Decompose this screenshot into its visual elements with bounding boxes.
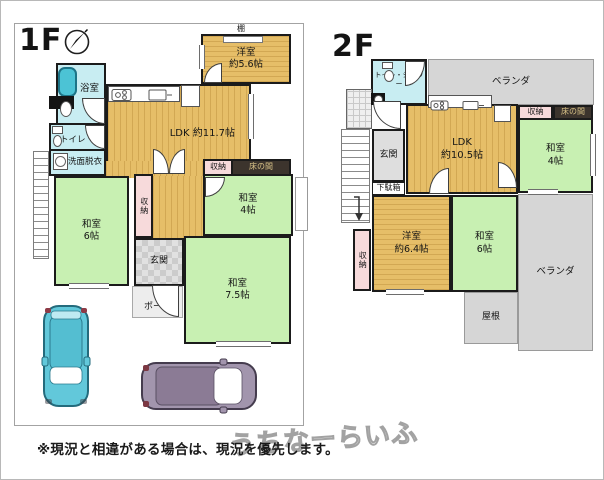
floor-1f-label: 1F bbox=[19, 23, 62, 58]
room-1f-japanese-room-75: 和室 7.5帖 bbox=[184, 236, 291, 344]
window bbox=[386, 289, 424, 295]
window bbox=[216, 341, 271, 347]
floor-2f-label: 2F bbox=[332, 29, 375, 64]
disclaimer-text: ※現況と相違がある場合は、現況を優先します。 bbox=[37, 438, 339, 458]
veranda-north-label: ベランダ bbox=[492, 76, 530, 88]
room-2f-closet-west: 収納 bbox=[353, 229, 371, 291]
toilet-bowl-icon bbox=[53, 135, 62, 147]
room-2f-western-room-label: 洋室 約6.4帖 bbox=[394, 231, 428, 256]
room-2f-western-room: 洋室 約6.4帖 bbox=[372, 195, 451, 292]
stairs-down-arrow-icon bbox=[350, 195, 368, 223]
stairwell-void-2f bbox=[346, 89, 372, 129]
stove-sink-icon bbox=[429, 100, 491, 111]
room-1f-japanese-room-4-label: 和室 4帖 bbox=[238, 193, 257, 218]
kitchen-counter-1f bbox=[108, 86, 180, 102]
room-1f-ldk-corridor bbox=[153, 176, 203, 238]
toilet-tank-icon bbox=[382, 62, 393, 69]
car-top-view-purple-icon bbox=[140, 358, 260, 414]
room-1f-entrance-label: 玄関 bbox=[150, 256, 168, 268]
room-2f-ldk-label: LDK 約10.5帖 bbox=[441, 136, 483, 162]
room-1f-closet-hall: 収納 bbox=[134, 174, 153, 238]
window bbox=[590, 134, 596, 176]
room-2f-closet-north-label: 収納 bbox=[528, 107, 544, 117]
toilet-tank-icon bbox=[52, 126, 63, 134]
staircase-1f bbox=[33, 151, 49, 259]
engawa-strip-1f bbox=[295, 177, 308, 231]
roof-area-2f: 屋根 bbox=[464, 292, 518, 344]
room-2f-entrance: 玄関 bbox=[372, 129, 405, 182]
kitchen-counter-2f bbox=[428, 95, 492, 108]
room-1f-japanese-room-75-label: 和室 7.5帖 bbox=[225, 278, 250, 303]
room-2f-closet-west-label: 収納 bbox=[357, 251, 367, 269]
window bbox=[528, 189, 558, 195]
washing-machine-icon bbox=[53, 153, 68, 170]
roof-label: 屋根 bbox=[482, 312, 500, 324]
room-1f-closet-hall-label: 収納 bbox=[138, 197, 148, 215]
room-2f-japanese-room-4-label: 和室 4帖 bbox=[546, 143, 565, 168]
room-2f-tokonoma-label: 床の間 bbox=[561, 107, 585, 117]
room-1f-toilet-label: トイレ bbox=[60, 135, 86, 146]
window bbox=[248, 94, 254, 139]
room-2f-shoe-cabinet: 下駄箱 bbox=[372, 182, 405, 195]
washer-drum-icon bbox=[55, 156, 66, 167]
refrigerator-icon bbox=[494, 105, 511, 122]
door-swing-arc bbox=[373, 101, 401, 129]
floorplan-canvas: 1F LDK 約11.7帖 洋室 約5.6帖 浴室 トイレ 洗面脱衣 和室 6帖… bbox=[0, 0, 604, 480]
washbasin-icon bbox=[60, 101, 72, 117]
room-2f-japanese-room-6: 和室 6帖 bbox=[451, 195, 518, 292]
room-1f-bathroom-label: 浴室 bbox=[80, 83, 99, 95]
refrigerator-icon bbox=[181, 85, 200, 107]
room-1f-japanese-room-6: 和室 6帖 bbox=[54, 176, 129, 286]
room-1f-washroom-label: 洗面脱衣 bbox=[68, 157, 102, 168]
toilet-bowl-icon bbox=[384, 70, 394, 82]
room-2f-japanese-room-6-label: 和室 6帖 bbox=[475, 231, 494, 256]
room-1f-closet-east-label: 収納 bbox=[210, 162, 226, 172]
room-2f-shoe-cabinet-label: 下駄箱 bbox=[377, 183, 401, 193]
stove-sink-icon bbox=[109, 88, 179, 102]
shelf-label: 棚 bbox=[237, 23, 245, 34]
room-1f-western-room-label: 洋室 約5.6帖 bbox=[229, 47, 263, 72]
room-2f-japanese-room-4: 和室 4帖 bbox=[518, 118, 593, 193]
room-1f-ldk-label: LDK 約11.7帖 bbox=[170, 127, 235, 140]
room-1f-tokonoma-label: 床の間 bbox=[249, 162, 273, 172]
room-1f-japanese-room-6-label: 和室 6帖 bbox=[82, 219, 101, 244]
window bbox=[199, 45, 205, 69]
north-compass-icon bbox=[63, 27, 91, 55]
veranda-east-label: ベランダ bbox=[536, 266, 574, 278]
room-1f-entrance: 玄関 bbox=[134, 238, 184, 286]
window bbox=[69, 283, 109, 289]
bathtub-icon bbox=[58, 67, 77, 97]
shelf-icon bbox=[223, 36, 263, 43]
veranda-east-2f: ベランダ bbox=[518, 194, 593, 351]
room-2f-entrance-label: 玄関 bbox=[379, 150, 397, 162]
car-top-view-teal-icon bbox=[41, 303, 91, 409]
